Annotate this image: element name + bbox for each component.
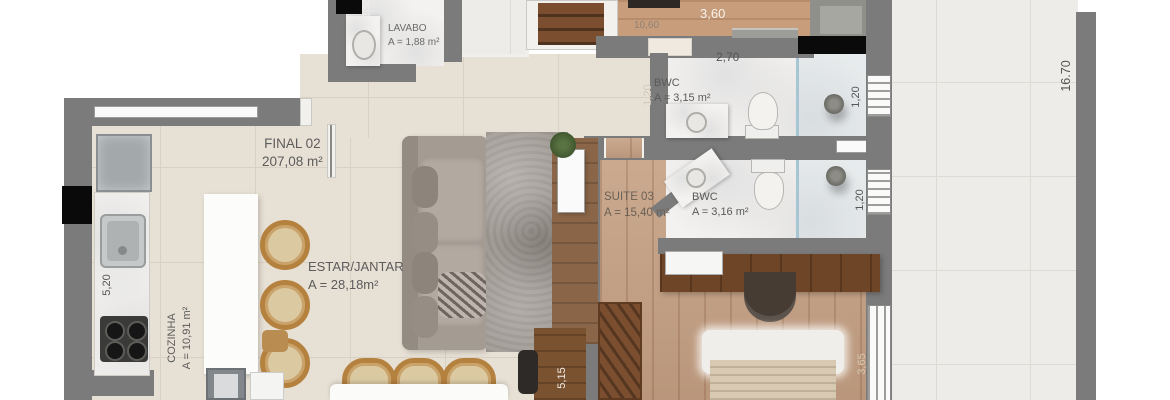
entry-door-marker: [336, 0, 362, 14]
wall-bedroom-bottom: [596, 36, 814, 58]
burner: [105, 341, 125, 361]
suite-door-opening: [604, 138, 644, 158]
dim-1-20-hall: 1,20: [642, 84, 654, 105]
dim-3-60: 3,60: [700, 6, 725, 21]
wall-lavabo-bottom: [328, 64, 416, 82]
dim-2-70: 2,70: [716, 50, 739, 64]
desk-chair: [744, 272, 796, 322]
bed-top-partial: [628, 0, 680, 8]
room-name: BWC: [654, 76, 711, 91]
kitchen-sink-basin: [107, 221, 139, 261]
room-name: LAVABO: [388, 22, 439, 36]
bwc1-shower-head: [824, 94, 844, 114]
wall-terrace-outer: [1076, 12, 1096, 400]
plant: [550, 132, 576, 158]
bwc2-window: [868, 170, 890, 214]
stool: [260, 220, 310, 270]
dim-1-20-bwc1: 1,20: [850, 86, 862, 107]
bwc2-shower-head: [826, 166, 846, 186]
sofa-pillow: [412, 212, 438, 254]
concrete-shaft-inner: [820, 6, 862, 34]
kitchen-window: [94, 106, 258, 118]
sofa-pillow: [412, 252, 438, 294]
unit-label: FINAL 02 207,08 m²: [262, 135, 323, 171]
desk-chair-black: [518, 350, 538, 394]
bed-duvet: [710, 360, 836, 400]
bwc2-toilet-bowl: [754, 172, 784, 210]
faucet: [118, 246, 127, 255]
room-name: BWC: [692, 190, 749, 205]
room-area: A = 28,18m²: [308, 276, 404, 294]
bwc1-basin: [686, 112, 707, 133]
wall-left: [64, 98, 92, 400]
oven-door: [214, 374, 238, 398]
dining-table: [330, 384, 508, 400]
wall-section-marker-left: [62, 186, 92, 224]
suite-sliding-door: [868, 306, 890, 400]
room-label-bwc1: BWC A = 3,15 m²: [654, 76, 711, 106]
tv: [558, 150, 584, 212]
shelf-top-bedroom: [732, 28, 798, 38]
room-area: A = 10,91 m²: [180, 307, 195, 370]
cutting-board: [262, 330, 288, 352]
room-name: ESTAR/JANTAR: [308, 258, 404, 276]
closet-top: [538, 3, 604, 45]
shower-glass-bwc2: [796, 158, 799, 240]
wardrobe: [598, 302, 642, 400]
fridge: [96, 134, 152, 192]
room-label-suite03: SUITE 03 A = 15,40 m²: [604, 190, 670, 221]
burner: [127, 321, 147, 341]
pony-wall: [327, 124, 336, 178]
bwc1-toilet-bowl: [748, 92, 778, 130]
room-area: A = 15,40 m²: [604, 206, 670, 222]
dim-16-70: 16.70: [1059, 60, 1073, 91]
sofa-throw: [438, 272, 486, 318]
burner: [105, 321, 125, 341]
wall-cap: [300, 98, 312, 126]
sofa-pillow: [412, 166, 438, 208]
kitchen-island: [204, 194, 258, 374]
room-label-lavabo: LAVABO A = 1,88 m²: [388, 22, 439, 49]
room-area: A = 1,88 m²: [388, 36, 439, 50]
dim-5-15: 5,15: [556, 367, 568, 388]
floor-service-hall: [462, 0, 526, 54]
unit-name: FINAL 02: [262, 135, 323, 153]
room-name: SUITE 03: [604, 190, 670, 206]
room-area: A = 3,16 m²: [692, 205, 749, 220]
shower-glass-bwc1: [796, 54, 799, 138]
room-area: A = 3,15 m²: [654, 91, 711, 106]
bwc1-window: [868, 76, 890, 116]
dim-5-20: 5,20: [101, 274, 113, 295]
room-name: COZINHA: [165, 307, 180, 370]
room-label-bwc2: BWC A = 3,16 m²: [692, 190, 749, 220]
stool: [260, 280, 310, 330]
sofa-pillow: [412, 296, 438, 338]
wall-lavabo-right: [444, 0, 462, 62]
laptop: [666, 252, 722, 274]
burner: [127, 341, 147, 361]
room-label-cozinha: COZINHA A = 10,91 m²: [165, 307, 195, 370]
dim-3-65: 3,65: [856, 353, 868, 374]
lavabo-basin: [352, 30, 376, 60]
desk: [534, 328, 586, 400]
floor-plan: FINAL 02 207,08 m² LAVABO A = 1,88 m² BW…: [0, 0, 1170, 400]
white-cabinet: [250, 372, 284, 400]
room-label-estar: ESTAR/JANTAR A = 28,18m²: [308, 258, 404, 293]
dim-1-20-bwc2: 1,20: [854, 189, 866, 210]
dim-10-60: 10,60: [634, 20, 659, 31]
floor-terrace: [888, 0, 1078, 400]
bwc2-toilet-tank: [752, 160, 784, 172]
dim-1-50: 1,50: [362, 0, 373, 18]
unit-area: 207,08 m²: [262, 153, 323, 171]
